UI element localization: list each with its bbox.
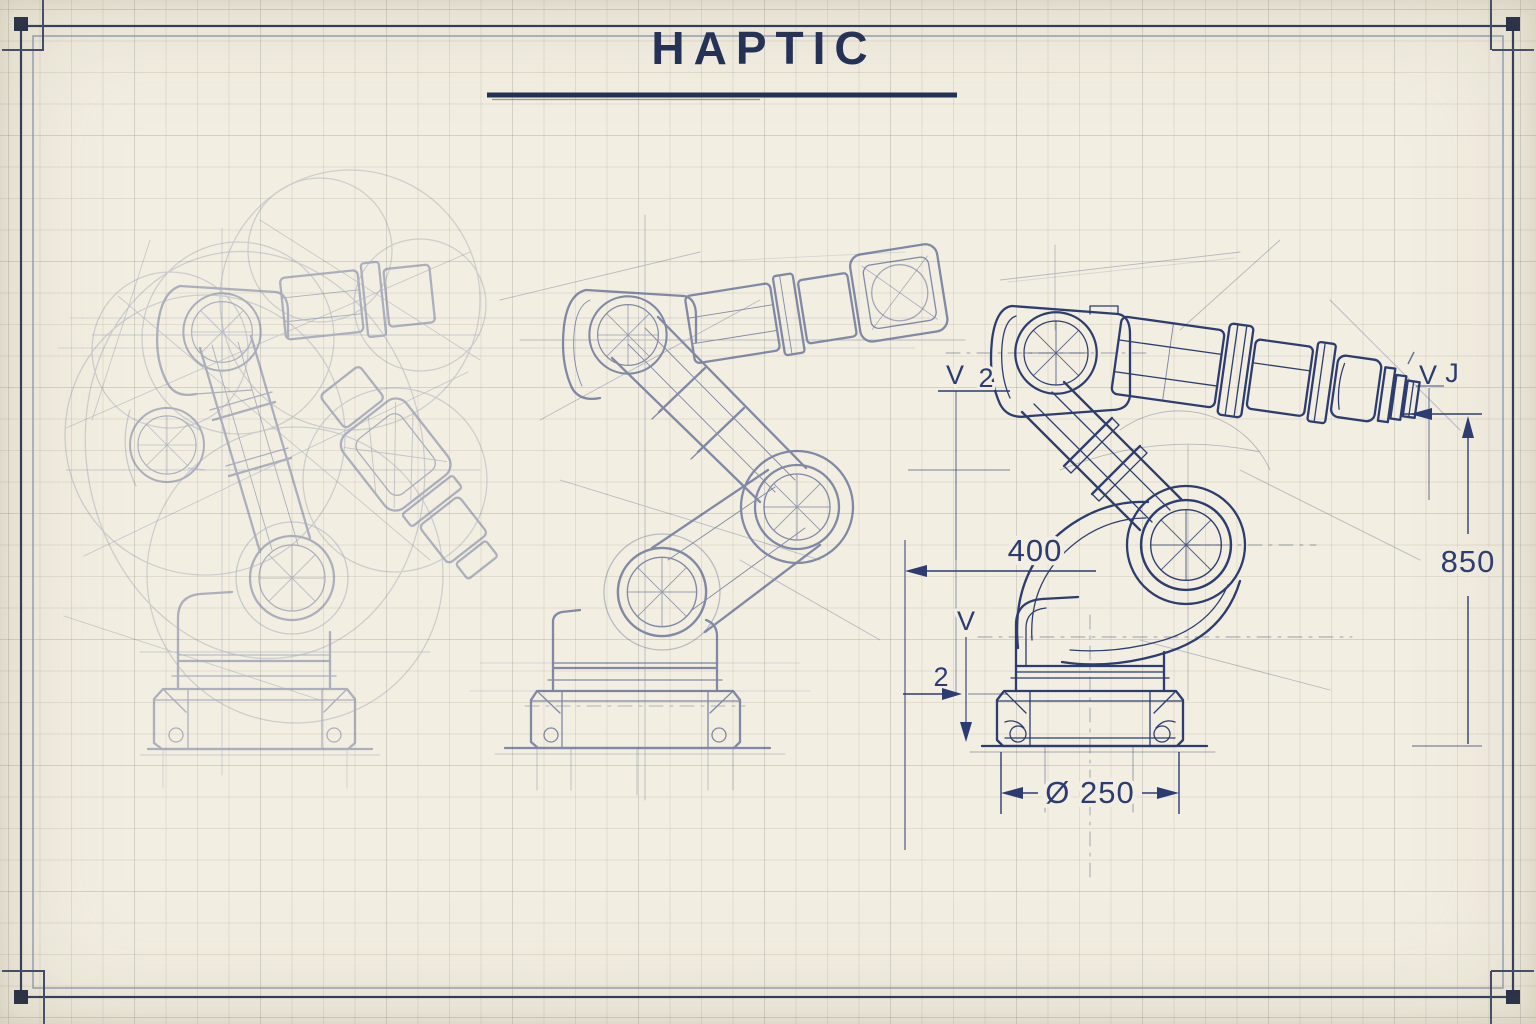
dim-400-label: 400 <box>1008 533 1063 568</box>
dimension-vertical-850: 850 <box>1404 408 1495 746</box>
dim-850-label: 850 <box>1441 544 1496 579</box>
callout-weld-top: V 2 <box>908 360 1010 695</box>
blueprint-sheet: HAPTIC <box>0 0 1536 1024</box>
dim-diameter-label: Ø 250 <box>1045 775 1134 810</box>
blueprint-drawing: HAPTIC <box>0 0 1536 1024</box>
final-forearm <box>1110 308 1424 441</box>
sketch-forearm <box>682 243 949 370</box>
callout-right-j-label: J <box>1445 358 1459 388</box>
construction-lines <box>1000 240 1460 700</box>
centerlines <box>946 353 1352 882</box>
construction-guides <box>58 252 1235 691</box>
robot-arm-sketch-rough <box>48 170 515 788</box>
dimensions: 400 850 Ø 250 V 2 V <box>903 352 1495 850</box>
construction-circles <box>48 170 487 723</box>
border-frame <box>21 26 1513 997</box>
callout-mid-num-label: 2 <box>933 662 948 692</box>
callout-top-num-label: 2 <box>978 363 993 393</box>
callout-top-v-label: V <box>946 360 964 390</box>
robot-arm-sketch-refined <box>495 215 965 800</box>
callout-right-edge: V J <box>1408 352 1459 500</box>
registration-marks <box>2 0 1534 1024</box>
title-underline <box>487 95 957 100</box>
callout-mid-v-label: V <box>957 606 975 636</box>
page-title: HAPTIC <box>651 22 876 74</box>
